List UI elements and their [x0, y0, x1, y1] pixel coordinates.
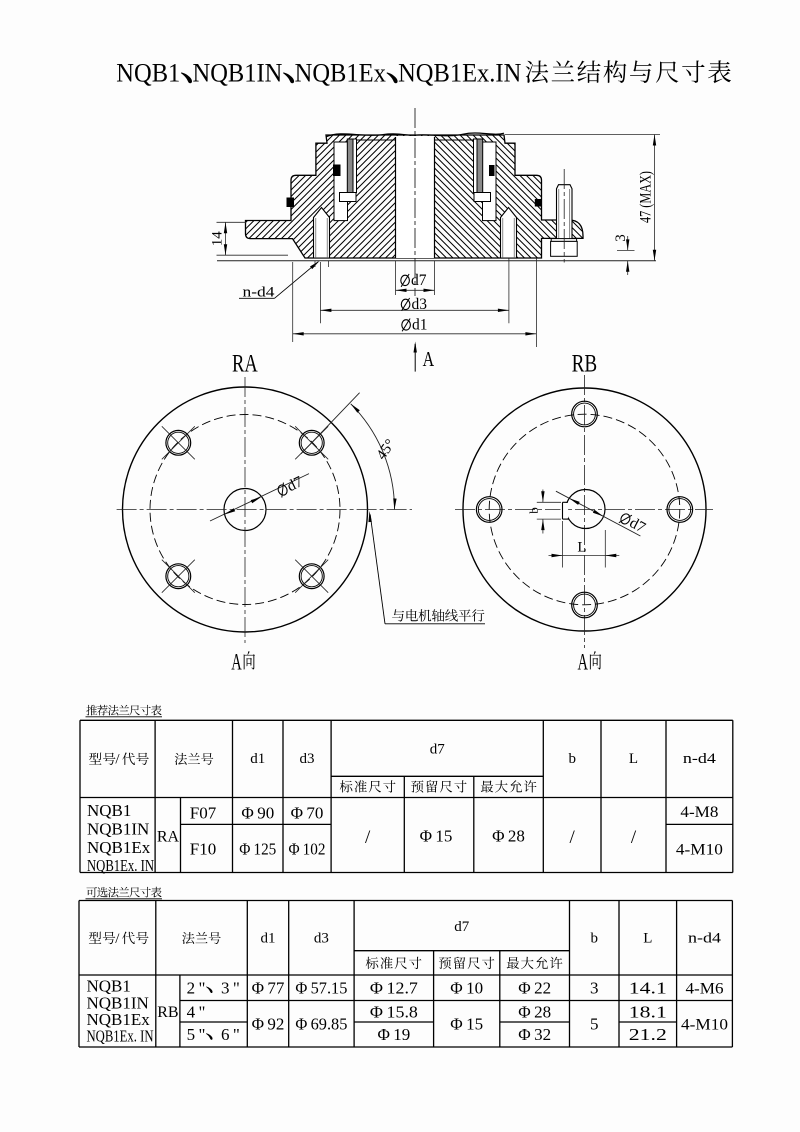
- svg-text:Φ 19: Φ 19: [377, 1025, 410, 1044]
- svg-text:d7: d7: [430, 741, 446, 757]
- svg-text:Φ 12.7: Φ 12.7: [370, 978, 419, 997]
- svg-text:Φ 15: Φ 15: [450, 1015, 483, 1034]
- svg-text:F07: F07: [190, 803, 217, 822]
- svg-text:d1: d1: [261, 930, 276, 946]
- svg-text:5 ": 5 ": [187, 1025, 206, 1044]
- svg-text:Φ 22: Φ 22: [518, 978, 551, 997]
- svg-text:L: L: [643, 930, 652, 946]
- svg-text:n-d4: n-d4: [688, 930, 722, 946]
- svg-text:/: /: [631, 827, 637, 848]
- svg-text:Φ 28: Φ 28: [492, 827, 525, 846]
- svg-text:d3: d3: [314, 930, 329, 946]
- svg-text:A: A: [423, 347, 435, 371]
- svg-text:Φ 77: Φ 77: [252, 978, 285, 997]
- svg-text:3: 3: [590, 978, 599, 997]
- svg-text:4-M10: 4-M10: [676, 842, 723, 859]
- svg-text:14.1: 14.1: [629, 978, 667, 997]
- svg-text:b: b: [526, 507, 541, 514]
- svg-text:b: b: [591, 930, 599, 946]
- svg-text:Φ 15: Φ 15: [420, 827, 453, 846]
- svg-text:6 ": 6 ": [221, 1025, 240, 1044]
- svg-text:F10: F10: [190, 840, 216, 859]
- svg-text:d7: d7: [454, 919, 470, 935]
- svg-text:NQB1 NQB1IN NQB1Ex NQB1Ex.I: NQB1 NQB1IN NQB1Ex NQB1Ex.IN: [116, 59, 521, 88]
- svg-text:21.2: 21.2: [629, 1025, 667, 1044]
- svg-text:Φ 32: Φ 32: [518, 1025, 551, 1044]
- svg-text:b: b: [568, 751, 576, 767]
- svg-text:4-M8: 4-M8: [680, 804, 718, 821]
- svg-text:Φ 90: Φ 90: [241, 803, 274, 822]
- svg-text:Φ 10: Φ 10: [450, 978, 483, 997]
- svg-text:5: 5: [590, 1015, 599, 1034]
- svg-text:NQB1: NQB1: [87, 801, 131, 820]
- svg-text:/: /: [365, 827, 371, 848]
- svg-text:Φ 15.8: Φ 15.8: [370, 1003, 418, 1022]
- svg-text:A: A: [231, 650, 242, 675]
- svg-text:n-d4: n-d4: [683, 751, 717, 767]
- svg-text:NQB1Ex: NQB1Ex: [87, 838, 151, 857]
- svg-text:d3: d3: [300, 751, 315, 767]
- svg-text:RA: RA: [232, 351, 258, 378]
- svg-text:NQB1Ex. IN: NQB1Ex. IN: [87, 856, 154, 875]
- svg-text:4 ": 4 ": [187, 1003, 206, 1022]
- svg-text:L: L: [629, 751, 638, 767]
- svg-text:Φ 69.85: Φ 69.85: [295, 1015, 347, 1034]
- svg-text:d1: d1: [412, 317, 428, 334]
- svg-text:Φ 102: Φ 102: [289, 840, 326, 859]
- svg-text:2 ": 2 ": [187, 978, 206, 997]
- svg-text:Φ 92: Φ 92: [252, 1015, 285, 1034]
- svg-text:18.1: 18.1: [629, 1003, 667, 1022]
- svg-text:/: /: [570, 827, 576, 848]
- svg-text:3 ": 3 ": [221, 978, 240, 997]
- svg-text:NQB1Ex. IN: NQB1Ex. IN: [87, 1027, 154, 1046]
- svg-text:Φ 125: Φ 125: [239, 840, 276, 859]
- svg-text:RB: RB: [572, 351, 598, 378]
- svg-text:L: L: [577, 540, 586, 556]
- svg-text:A: A: [578, 650, 589, 675]
- svg-text:d1: d1: [250, 751, 265, 767]
- svg-text:NQB1IN: NQB1IN: [87, 819, 149, 838]
- svg-text:14: 14: [210, 231, 226, 247]
- svg-text:Φ 57.15: Φ 57.15: [295, 978, 347, 997]
- svg-text:RB: RB: [157, 1004, 178, 1021]
- svg-text:47 (MAX): 47 (MAX): [638, 171, 655, 223]
- svg-text:3: 3: [613, 234, 629, 242]
- svg-text:Φ 70: Φ 70: [291, 803, 324, 822]
- svg-text:RA: RA: [157, 829, 180, 846]
- svg-text:d3: d3: [412, 296, 428, 313]
- svg-text:4-M6: 4-M6: [686, 980, 724, 997]
- svg-text:4-M10: 4-M10: [681, 1017, 728, 1034]
- svg-text:d7: d7: [411, 272, 427, 289]
- svg-text:Φ 28: Φ 28: [518, 1003, 551, 1022]
